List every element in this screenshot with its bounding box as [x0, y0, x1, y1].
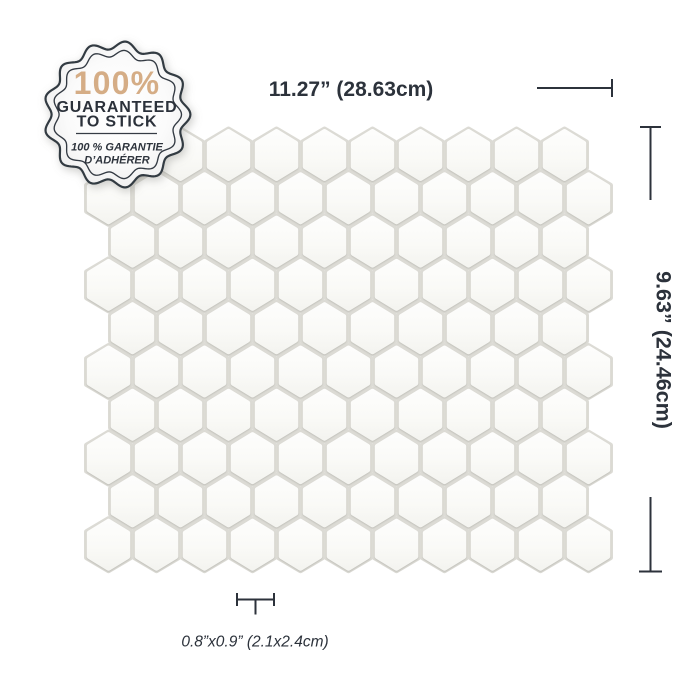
- svg-text:D’ADHÉRER: D’ADHÉRER: [84, 154, 149, 167]
- svg-text:11.27” (28.63cm): 11.27” (28.63cm): [269, 78, 434, 101]
- svg-text:TO STICK: TO STICK: [77, 114, 158, 131]
- svg-text:9.63” (24.46cm): 9.63” (24.46cm): [652, 271, 676, 429]
- svg-text:100%: 100%: [74, 65, 161, 101]
- svg-text:0.8”x0.9” (2.1x2.4cm): 0.8”x0.9” (2.1x2.4cm): [181, 634, 328, 651]
- svg-text:100 % GARANTIE: 100 % GARANTIE: [71, 142, 163, 154]
